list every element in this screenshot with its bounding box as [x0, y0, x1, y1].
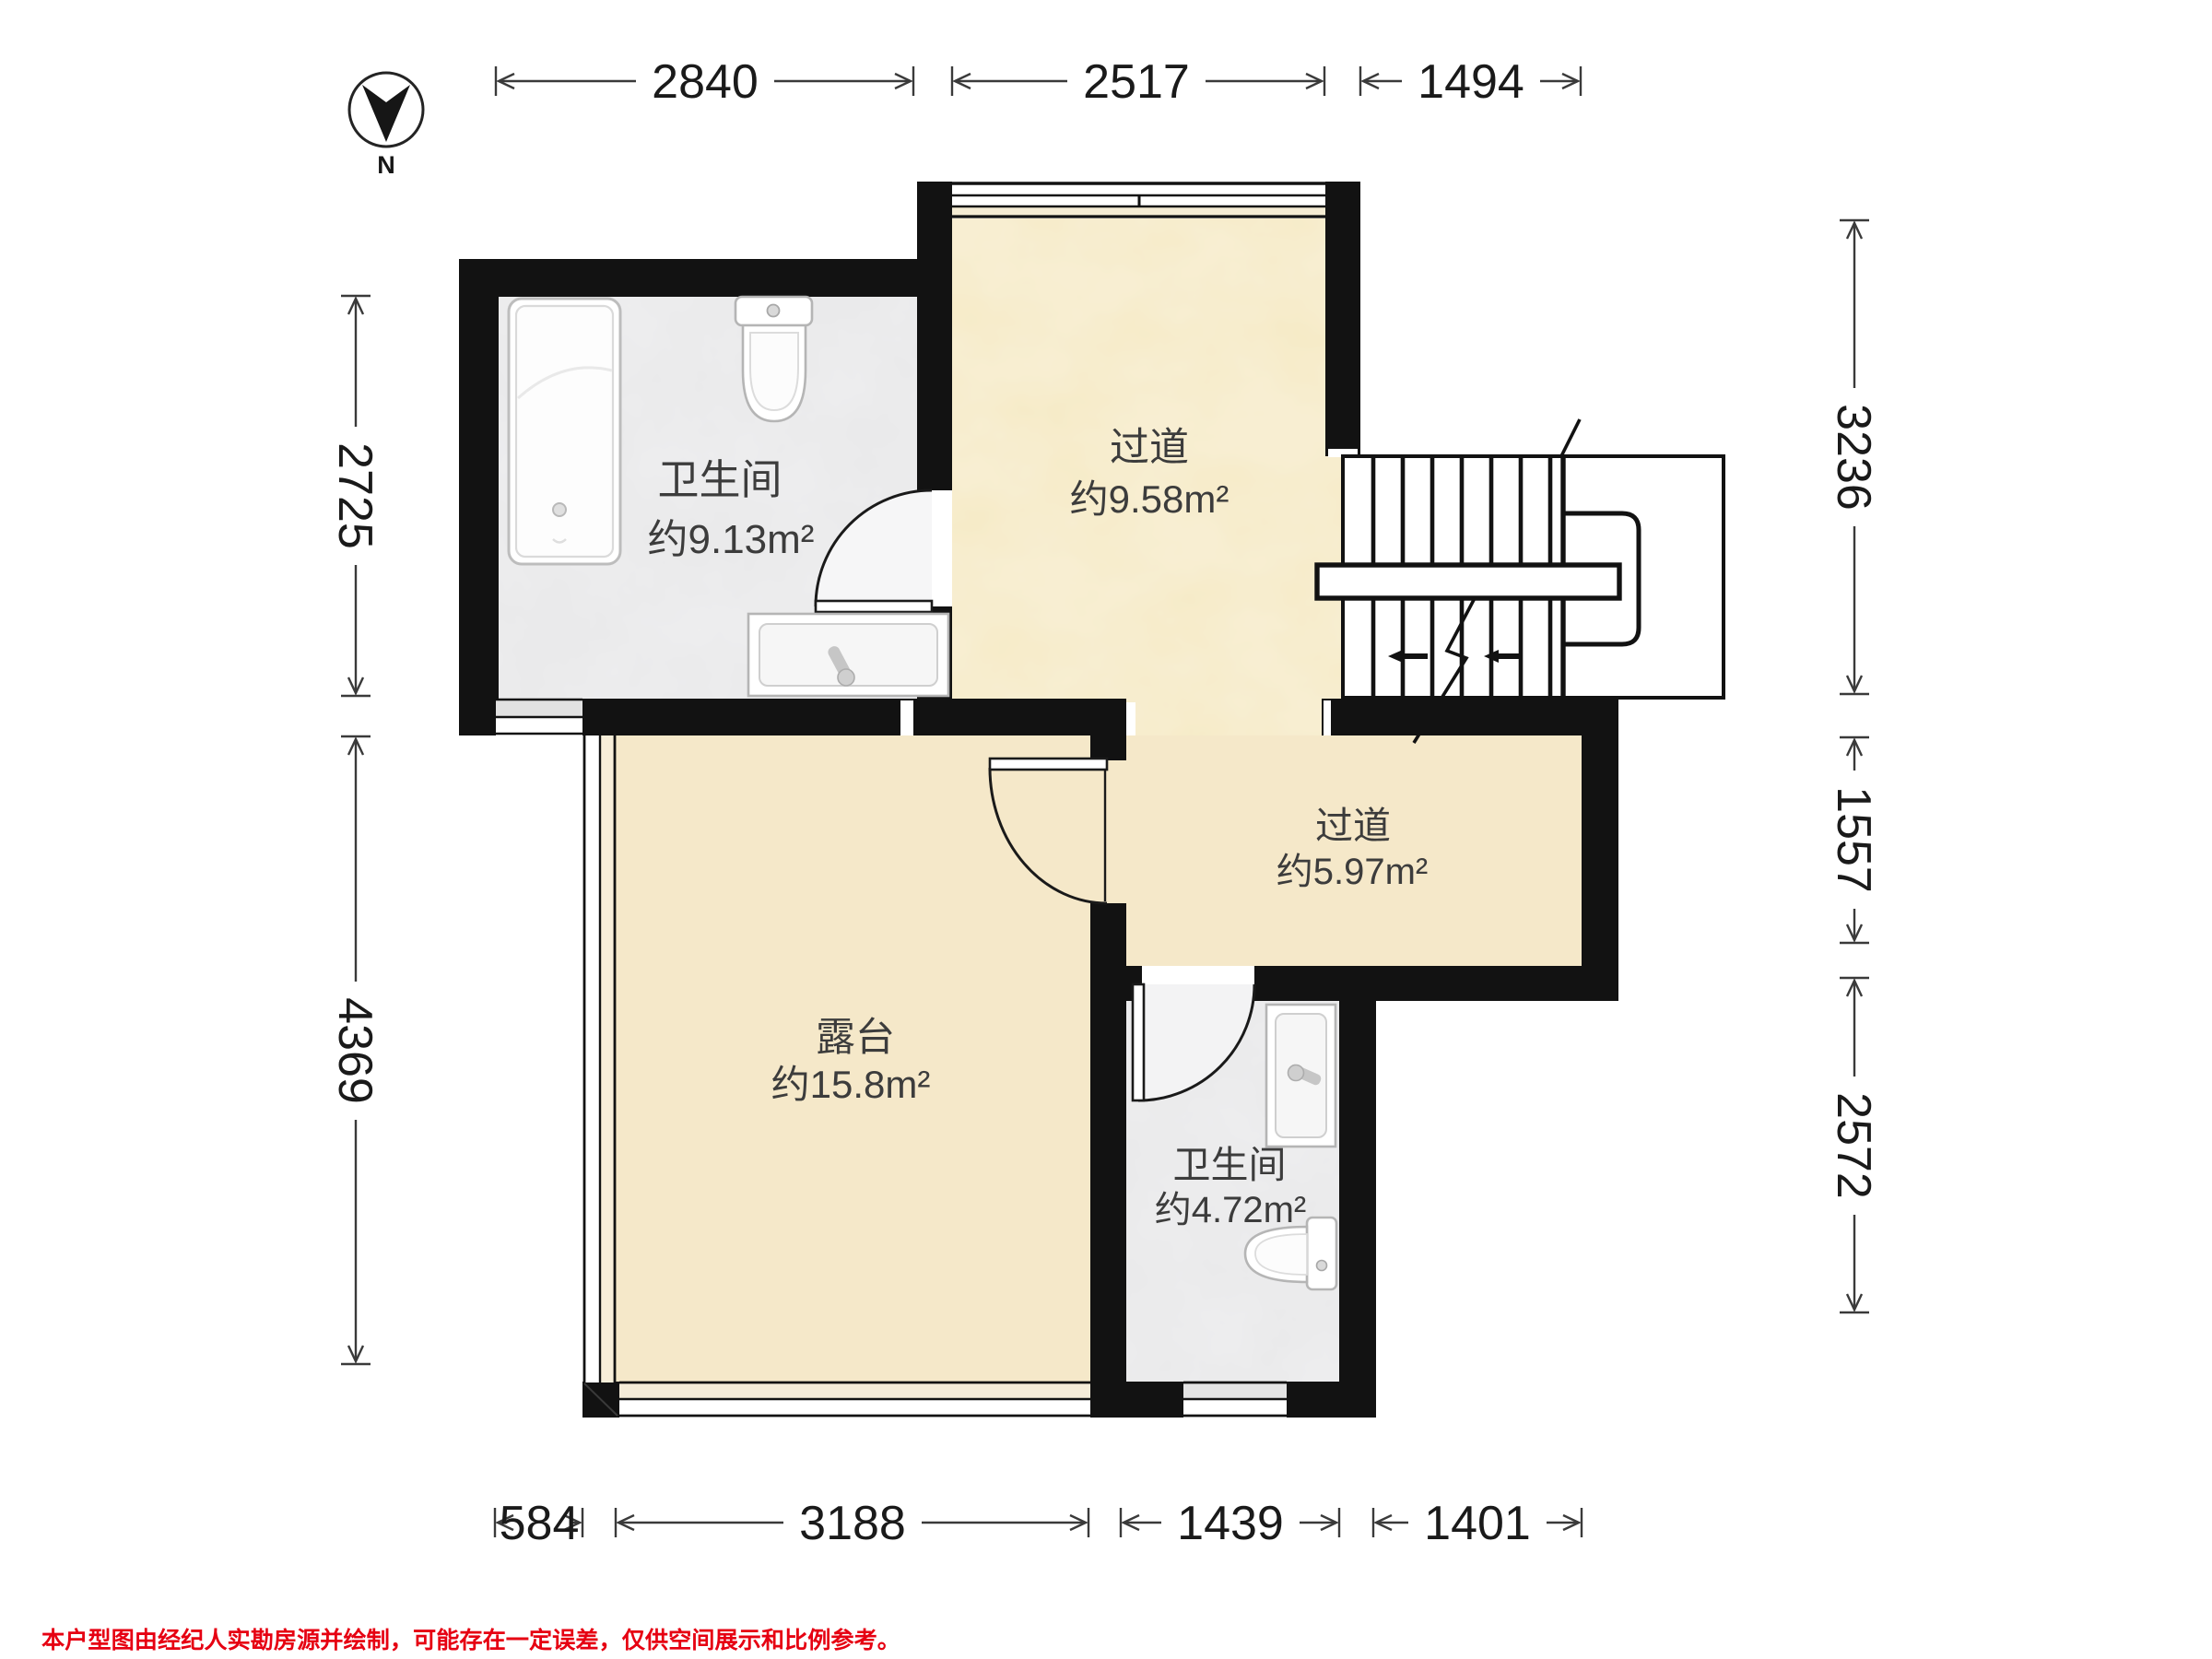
svg-text:1439: 1439 — [1177, 1497, 1284, 1550]
svg-text:1494: 1494 — [1418, 55, 1524, 109]
svg-text:卫生间: 卫生间 — [657, 456, 782, 503]
svg-text:露台: 露台 — [816, 1016, 895, 1060]
svg-text:4369: 4369 — [328, 997, 382, 1104]
svg-text:N: N — [377, 151, 395, 179]
svg-text:约9.13m²: 约9.13m² — [648, 517, 815, 562]
svg-text:过道: 过道 — [1110, 426, 1189, 470]
svg-text:本户型图由经纪人实勘房源并绘制，可能存在一定误差，仅供空间展: 本户型图由经纪人实勘房源并绘制，可能存在一定误差，仅供空间展示和比例参考。 — [41, 1627, 900, 1653]
svg-text:约5.97m²: 约5.97m² — [1277, 852, 1429, 892]
svg-text:3188: 3188 — [799, 1497, 906, 1550]
svg-text:2572: 2572 — [1827, 1092, 1880, 1199]
svg-text:1557: 1557 — [1827, 786, 1880, 893]
svg-text:2517: 2517 — [1083, 55, 1190, 109]
svg-text:过道: 过道 — [1315, 805, 1391, 847]
svg-text:584: 584 — [500, 1497, 580, 1550]
svg-text:约4.72m²: 约4.72m² — [1155, 1190, 1307, 1230]
svg-text:2840: 2840 — [652, 55, 759, 109]
svg-text:约9.58m²: 约9.58m² — [1070, 477, 1230, 521]
svg-text:卫生间: 卫生间 — [1173, 1144, 1287, 1186]
svg-text:1401: 1401 — [1424, 1497, 1531, 1550]
svg-text:2725: 2725 — [328, 442, 382, 549]
svg-text:约15.8m²: 约15.8m² — [771, 1063, 931, 1106]
svg-text:3236: 3236 — [1827, 404, 1880, 511]
